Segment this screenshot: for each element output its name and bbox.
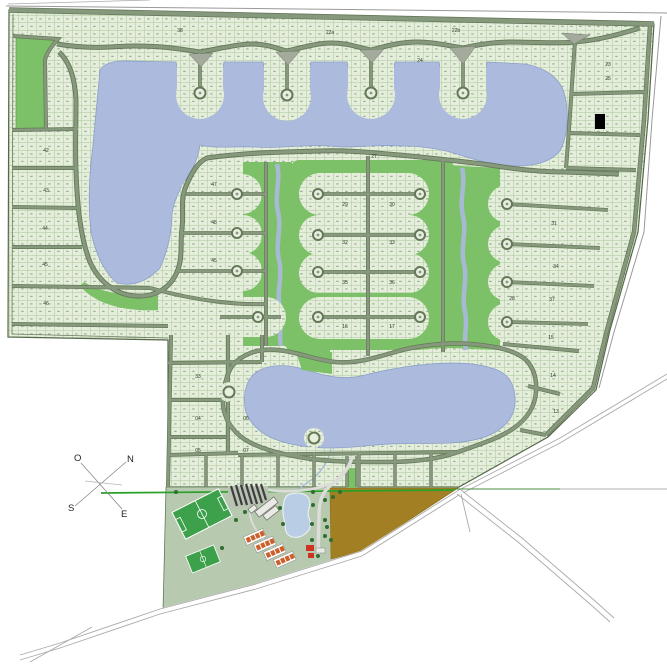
svg-text:25: 25 bbox=[605, 76, 611, 82]
svg-text:35: 35 bbox=[342, 280, 348, 286]
svg-text:34: 34 bbox=[553, 264, 559, 270]
svg-text:17: 17 bbox=[389, 324, 395, 330]
svg-text:42: 42 bbox=[43, 148, 49, 154]
svg-text:24: 24 bbox=[417, 58, 423, 64]
svg-text:14: 14 bbox=[550, 373, 556, 379]
svg-text:S: S bbox=[68, 503, 74, 514]
svg-text:48: 48 bbox=[211, 220, 217, 226]
svg-text:07: 07 bbox=[243, 448, 249, 454]
svg-text:43: 43 bbox=[43, 188, 49, 194]
svg-text:33: 33 bbox=[195, 374, 201, 380]
svg-text:22a: 22a bbox=[326, 30, 335, 36]
svg-text:36: 36 bbox=[389, 280, 395, 286]
svg-text:22b: 22b bbox=[452, 28, 461, 34]
svg-text:29: 29 bbox=[342, 202, 348, 208]
svg-text:E: E bbox=[121, 509, 127, 520]
svg-text:45: 45 bbox=[211, 258, 217, 264]
svg-text:15: 15 bbox=[548, 335, 554, 341]
svg-text:37: 37 bbox=[549, 297, 555, 303]
svg-text:23: 23 bbox=[605, 62, 611, 68]
svg-text:45: 45 bbox=[42, 262, 48, 268]
svg-text:27: 27 bbox=[371, 154, 377, 160]
svg-text:31: 31 bbox=[551, 221, 557, 227]
svg-text:13: 13 bbox=[553, 409, 559, 415]
svg-text:30: 30 bbox=[389, 202, 395, 208]
svg-text:05: 05 bbox=[195, 448, 201, 454]
svg-text:46: 46 bbox=[43, 301, 49, 307]
svg-text:O: O bbox=[74, 453, 81, 464]
svg-text:16: 16 bbox=[342, 324, 348, 330]
svg-text:N: N bbox=[127, 454, 134, 465]
svg-text:04: 04 bbox=[195, 416, 201, 422]
svg-text:38: 38 bbox=[177, 28, 183, 34]
svg-text:06: 06 bbox=[243, 416, 249, 422]
svg-text:32: 32 bbox=[342, 240, 348, 246]
svg-text:28: 28 bbox=[509, 296, 515, 302]
svg-text:44: 44 bbox=[42, 226, 48, 232]
svg-text:47: 47 bbox=[211, 182, 217, 188]
svg-text:33: 33 bbox=[389, 240, 395, 246]
